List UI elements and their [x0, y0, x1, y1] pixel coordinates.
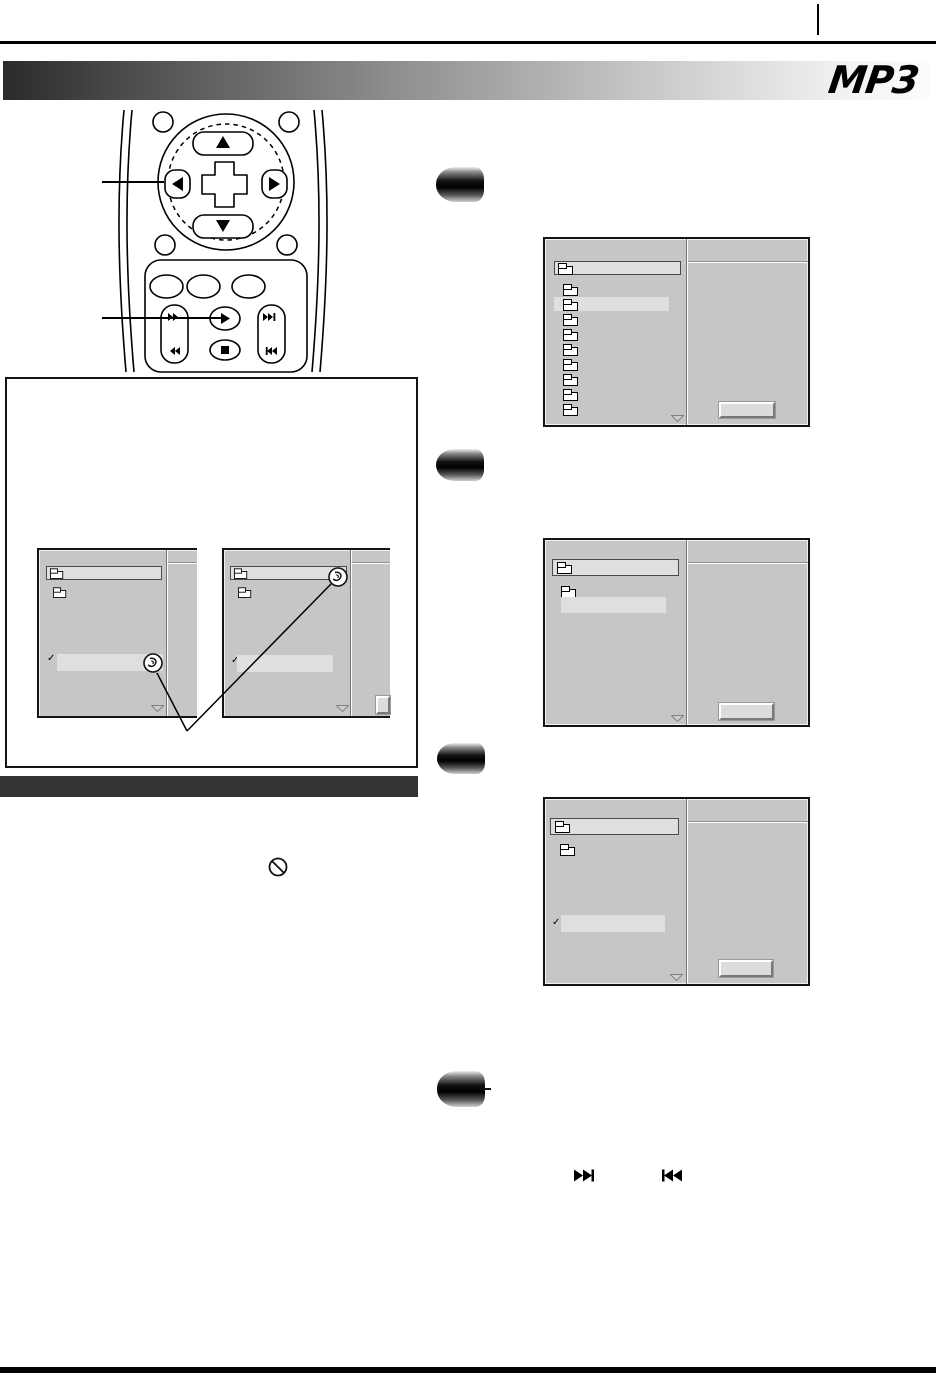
section-title-bar: [0, 776, 418, 797]
right-pane-rule-highlight: [688, 822, 808, 823]
selected-folder-row: [550, 818, 679, 835]
folder-icon: [563, 347, 578, 356]
step-badge-2: [436, 449, 484, 481]
pane-divider-highlight: [687, 239, 688, 425]
dash-mark: [484, 1088, 491, 1090]
function-button[interactable]: [187, 275, 220, 298]
folder-icon: [563, 317, 578, 326]
remote-control-figure: [93, 106, 343, 376]
folder-icon: [560, 847, 575, 856]
folder-icon: [563, 287, 578, 296]
stop-icon: [221, 346, 229, 354]
scroll-down-icon: [671, 415, 684, 422]
selected-folder-row: [554, 261, 681, 275]
function-button[interactable]: [232, 275, 265, 298]
screen-step1-folder-list: [543, 237, 810, 427]
highlighted-track-row: [561, 597, 666, 613]
folder-icon: [563, 332, 578, 341]
skip-previous-icon: [661, 1168, 683, 1183]
check-icon: ✓: [552, 918, 560, 928]
right-pane-rule-highlight: [688, 563, 808, 564]
folder-icon: [563, 377, 578, 386]
remote-corner-button[interactable]: [279, 112, 299, 132]
scroll-down-icon: [670, 974, 683, 981]
marker-pointer-lines: [5, 377, 418, 768]
folder-icon: [563, 392, 578, 401]
skip-next-icon: [573, 1168, 595, 1183]
header-rule: [0, 41, 936, 44]
folder-icon: [555, 824, 570, 833]
step-badge-3: [437, 743, 485, 774]
function-button[interactable]: [150, 275, 183, 298]
screen-button: [719, 960, 773, 977]
checked-track-row: [561, 915, 665, 932]
manual-page: MP3: [0, 0, 936, 1374]
folder-icon: [557, 565, 572, 574]
remote-body-left-outline: [119, 110, 126, 372]
mp3-logo: MP3: [826, 60, 921, 100]
pane-divider-highlight: [687, 799, 688, 984]
remote-body-right-outline: [320, 110, 327, 372]
remote-corner-button[interactable]: [155, 235, 175, 255]
remote-corner-button[interactable]: [277, 235, 297, 255]
screen-step3-track-checked: ✓: [543, 797, 810, 986]
right-pane-rule-highlight: [688, 262, 808, 263]
folder-icon: [563, 362, 578, 371]
folder-icon: [563, 407, 578, 416]
remote-body-left-inner: [127, 110, 134, 372]
remote-corner-button[interactable]: [153, 112, 173, 132]
screen-step2-folder-open: [543, 538, 810, 727]
selected-folder-row: [552, 559, 679, 576]
prohibition-icon: [267, 856, 289, 878]
page-tab-marker: [817, 4, 819, 35]
pane-divider-highlight: [687, 540, 688, 725]
step-badge-1: [436, 167, 484, 202]
remote-body-right-inner: [312, 110, 319, 372]
scroll-down-icon: [671, 715, 684, 722]
folder-icon: [563, 302, 578, 311]
screen-button: [719, 703, 774, 720]
step-badge-4: [437, 1071, 485, 1107]
screen-button: [719, 402, 775, 418]
footer-rule: [0, 1367, 936, 1373]
folder-icon: [558, 266, 573, 275]
section-gradient-bar: [3, 61, 930, 100]
